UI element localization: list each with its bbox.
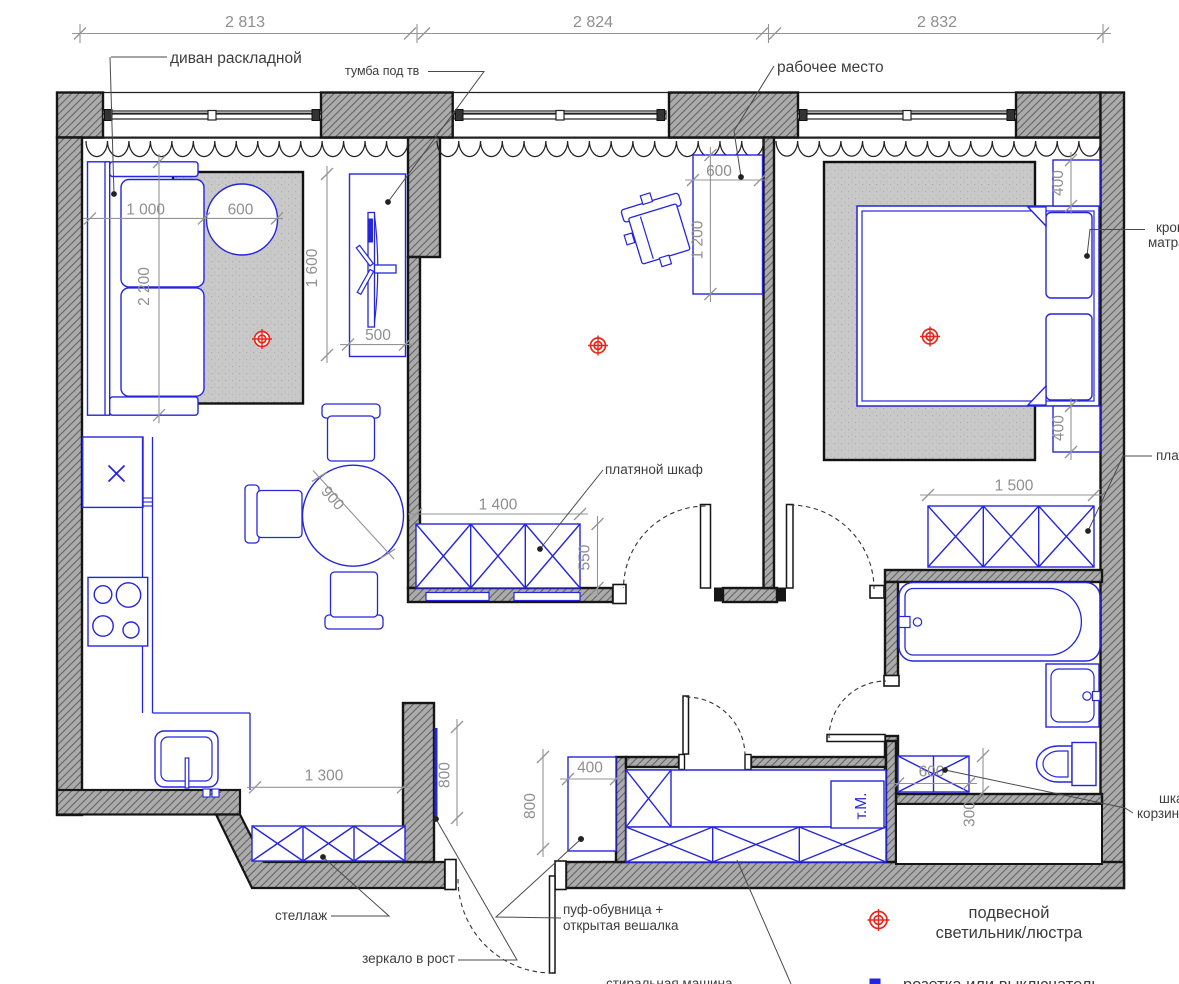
svg-text:1 500: 1 500	[995, 478, 1034, 495]
svg-text:диван раскладной: диван раскладной	[170, 50, 302, 67]
svg-text:1 600: 1 600	[304, 248, 321, 287]
svg-text:1 200: 1 200	[690, 220, 707, 259]
svg-text:подвесной: подвесной	[969, 904, 1050, 922]
svg-text:400: 400	[1050, 170, 1067, 196]
svg-text:открытая вешалка: открытая вешалка	[563, 918, 679, 933]
svg-text:2 824: 2 824	[573, 14, 613, 31]
svg-text:плат: плат	[1156, 448, 1179, 463]
svg-text:светильник/люстра: светильник/люстра	[936, 924, 1084, 942]
svg-text:т.М.: т.М.	[853, 793, 870, 820]
svg-text:800: 800	[522, 793, 539, 819]
svg-text:стиральная машина: стиральная машина	[606, 976, 733, 984]
svg-text:зеркало в рост: зеркало в рост	[362, 951, 455, 966]
svg-text:платяной шкаф: платяной шкаф	[605, 462, 703, 477]
svg-text:кровать с: кровать с	[1156, 220, 1179, 235]
svg-text:рабочее место: рабочее место	[777, 59, 884, 76]
svg-text:300: 300	[962, 801, 979, 827]
svg-text:розетка или выключатель: розетка или выключатель	[903, 976, 1100, 984]
svg-text:стеллаж: стеллаж	[275, 908, 327, 923]
svg-text:2 832: 2 832	[917, 14, 957, 31]
svg-text:корзинами: корзинами	[1137, 806, 1179, 821]
svg-text:шкаф с: шкаф с	[1159, 791, 1179, 806]
svg-text:тумба под тв: тумба под тв	[345, 64, 420, 78]
svg-text:1 300: 1 300	[305, 768, 344, 785]
svg-text:матрасом: матрасом	[1148, 235, 1179, 250]
svg-text:2 813: 2 813	[225, 14, 265, 31]
svg-text:1 400: 1 400	[479, 497, 518, 514]
svg-text:2 200: 2 200	[136, 267, 153, 306]
svg-text:600: 600	[919, 764, 945, 781]
svg-text:550: 550	[577, 544, 594, 570]
svg-text:400: 400	[1051, 415, 1068, 441]
svg-text:пуф-обувница +: пуф-обувница +	[563, 902, 663, 917]
svg-text:800: 800	[437, 762, 454, 788]
svg-text:600: 600	[228, 202, 254, 219]
svg-text:400: 400	[577, 760, 603, 777]
svg-text:500: 500	[365, 327, 391, 344]
